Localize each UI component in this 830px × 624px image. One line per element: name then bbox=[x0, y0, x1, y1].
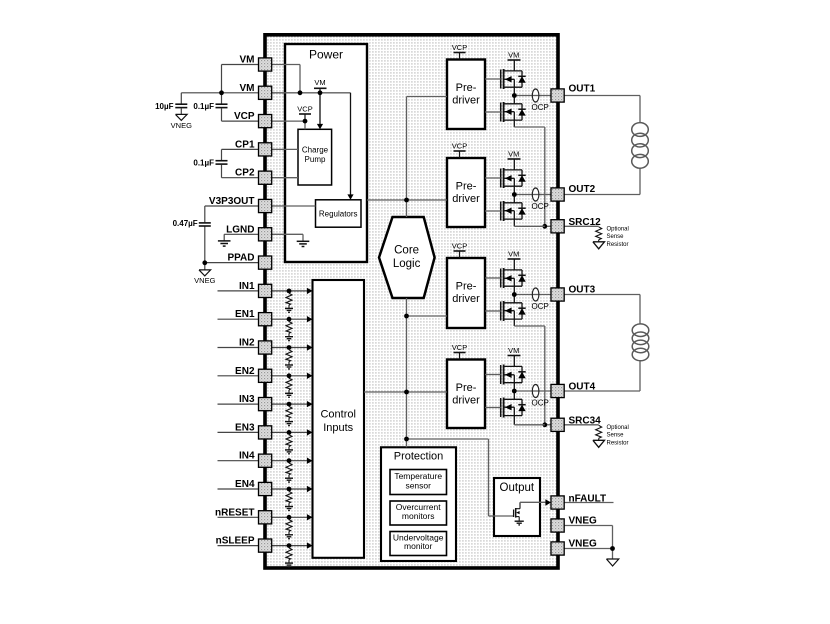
svg-text:LGND: LGND bbox=[226, 224, 254, 235]
svg-text:Pre-: Pre- bbox=[456, 382, 477, 394]
svg-text:OCP: OCP bbox=[532, 103, 549, 112]
svg-text:Charge: Charge bbox=[302, 146, 329, 155]
svg-text:Pre-: Pre- bbox=[456, 82, 477, 94]
svg-text:Output: Output bbox=[500, 482, 535, 494]
svg-text:Logic: Logic bbox=[393, 258, 421, 270]
svg-text:VM: VM bbox=[508, 51, 519, 60]
svg-text:0.1µF: 0.1µF bbox=[193, 158, 214, 167]
svg-text:nSLEEP: nSLEEP bbox=[216, 536, 255, 547]
svg-text:0.47µF: 0.47µF bbox=[173, 219, 198, 228]
svg-text:0.1µF: 0.1µF bbox=[193, 102, 214, 111]
svg-text:OCP: OCP bbox=[532, 399, 549, 408]
svg-text:OUT2: OUT2 bbox=[569, 184, 596, 195]
svg-text:Core: Core bbox=[394, 245, 419, 257]
svg-text:VM: VM bbox=[508, 150, 519, 159]
svg-text:VNEG: VNEG bbox=[569, 516, 598, 527]
svg-text:VCP: VCP bbox=[297, 105, 312, 114]
svg-text:VM: VM bbox=[508, 346, 519, 355]
svg-text:VCP: VCP bbox=[452, 242, 467, 251]
svg-text:Temperature: Temperature bbox=[394, 471, 442, 481]
svg-text:nFAULT: nFAULT bbox=[569, 494, 607, 505]
svg-text:Pre-: Pre- bbox=[456, 181, 477, 193]
svg-text:VM: VM bbox=[508, 250, 519, 259]
svg-text:Sense: Sense bbox=[607, 433, 625, 439]
svg-text:VCP: VCP bbox=[452, 142, 467, 151]
svg-text:CP1: CP1 bbox=[235, 139, 255, 150]
svg-text:Inputs: Inputs bbox=[323, 422, 353, 434]
svg-text:IN3: IN3 bbox=[239, 394, 255, 405]
svg-text:IN1: IN1 bbox=[239, 281, 255, 292]
svg-text:Resistor: Resistor bbox=[607, 441, 629, 447]
svg-text:VM: VM bbox=[314, 78, 325, 87]
svg-text:nRESET: nRESET bbox=[215, 507, 254, 518]
svg-text:Sense: Sense bbox=[607, 234, 625, 240]
svg-text:VM: VM bbox=[240, 83, 255, 94]
svg-text:VCP: VCP bbox=[452, 343, 467, 352]
svg-text:Optional: Optional bbox=[607, 425, 629, 431]
svg-text:OCP: OCP bbox=[532, 202, 549, 211]
svg-text:OCP: OCP bbox=[532, 302, 549, 311]
svg-text:Protection: Protection bbox=[394, 451, 444, 463]
svg-text:VNEG: VNEG bbox=[171, 121, 192, 130]
svg-text:OUT4: OUT4 bbox=[569, 382, 596, 393]
svg-text:OUT1: OUT1 bbox=[569, 83, 596, 94]
svg-text:VM: VM bbox=[240, 55, 255, 66]
svg-text:PPAD: PPAD bbox=[227, 253, 254, 264]
svg-text:driver: driver bbox=[452, 95, 480, 107]
svg-text:SRC12: SRC12 bbox=[569, 217, 602, 228]
svg-text:Optional: Optional bbox=[607, 227, 629, 233]
svg-text:10µF: 10µF bbox=[155, 102, 174, 111]
svg-text:VCP: VCP bbox=[234, 111, 255, 122]
svg-text:IN2: IN2 bbox=[239, 338, 255, 349]
svg-text:V3P3OUT: V3P3OUT bbox=[209, 196, 255, 207]
svg-text:EN2: EN2 bbox=[235, 366, 255, 377]
svg-text:EN3: EN3 bbox=[235, 422, 255, 433]
svg-text:VNEG: VNEG bbox=[194, 276, 215, 285]
svg-text:driver: driver bbox=[452, 193, 480, 205]
svg-text:Regulators: Regulators bbox=[319, 210, 358, 219]
svg-text:CP2: CP2 bbox=[235, 168, 255, 179]
svg-text:SRC34: SRC34 bbox=[569, 415, 602, 426]
svg-text:EN4: EN4 bbox=[235, 479, 255, 490]
svg-text:driver: driver bbox=[452, 293, 480, 305]
svg-text:monitor: monitor bbox=[404, 541, 433, 551]
svg-text:EN1: EN1 bbox=[235, 309, 255, 320]
svg-text:VCP: VCP bbox=[452, 43, 467, 52]
svg-text:OUT3: OUT3 bbox=[569, 285, 596, 296]
svg-text:sensor: sensor bbox=[405, 481, 431, 491]
svg-text:VNEG: VNEG bbox=[569, 539, 598, 550]
svg-text:driver: driver bbox=[452, 395, 480, 407]
svg-text:Power: Power bbox=[309, 48, 343, 62]
svg-text:monitors: monitors bbox=[402, 511, 435, 521]
svg-text:Resistor: Resistor bbox=[607, 242, 629, 248]
svg-text:Pre-: Pre- bbox=[456, 281, 477, 293]
svg-text:Pump: Pump bbox=[305, 155, 326, 164]
svg-text:Control: Control bbox=[320, 409, 355, 421]
svg-text:IN4: IN4 bbox=[239, 451, 255, 462]
